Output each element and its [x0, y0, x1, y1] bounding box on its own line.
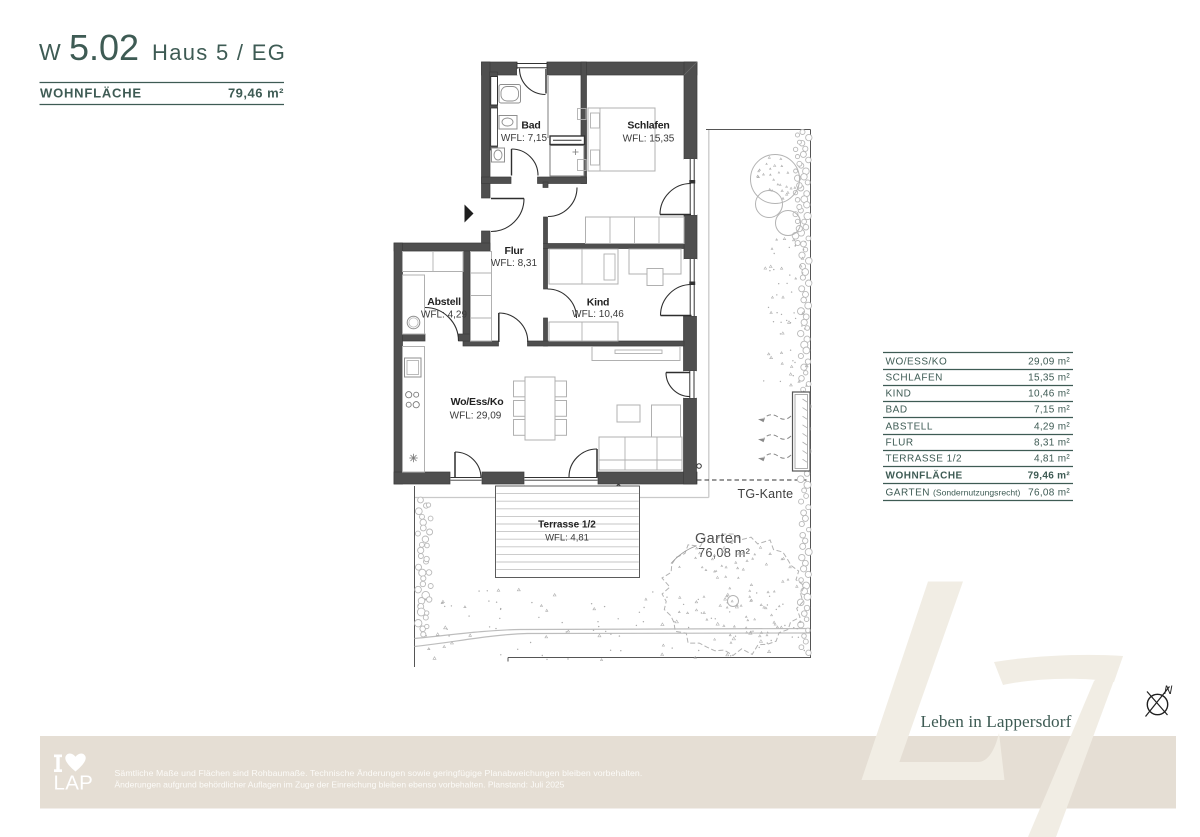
svg-text:WOHNFLÄCHE: WOHNFLÄCHE	[40, 86, 142, 101]
svg-text:Wo/Ess/Ko: Wo/Ess/Ko	[451, 396, 504, 408]
svg-text:7,15 m²: 7,15 m²	[1034, 405, 1070, 416]
svg-text:Kind: Kind	[587, 297, 610, 309]
svg-text:WFL: 8,31: WFL: 8,31	[491, 258, 538, 269]
svg-text:Terrasse 1/2: Terrasse 1/2	[538, 520, 596, 531]
svg-text:Haus 5 / EG: Haus 5 / EG	[152, 40, 286, 65]
svg-text:Sämtliche Maße und Flächen sin: Sämtliche Maße und Flächen sind Rohbauma…	[115, 768, 643, 778]
svg-text:LAP: LAP	[54, 772, 94, 795]
svg-text:WFL: 29,09: WFL: 29,09	[450, 411, 502, 422]
svg-text:79,46 m²: 79,46 m²	[1028, 471, 1071, 482]
svg-text:ABSTELL: ABSTELL	[886, 422, 933, 433]
svg-text:WFL: 10,46: WFL: 10,46	[572, 309, 624, 320]
svg-text:5.02: 5.02	[69, 27, 139, 68]
svg-text:10,46 m²: 10,46 m²	[1028, 389, 1070, 400]
svg-text:WFL: 7,15: WFL: 7,15	[501, 133, 548, 144]
svg-text:SCHLAFEN: SCHLAFEN	[886, 373, 943, 384]
svg-text:4,29 m²: 4,29 m²	[1034, 422, 1070, 433]
svg-text:TG-Kante: TG-Kante	[738, 487, 794, 501]
svg-text:15,35 m²: 15,35 m²	[1028, 373, 1070, 384]
svg-text:GARTEN: GARTEN	[886, 488, 931, 499]
svg-text:WFL: 4,81: WFL: 4,81	[545, 533, 589, 544]
svg-text:FLUR: FLUR	[886, 438, 914, 449]
svg-text:WFL: 15,35: WFL: 15,35	[623, 134, 675, 145]
svg-text:Bad: Bad	[521, 120, 540, 132]
svg-text:KIND: KIND	[886, 389, 912, 400]
svg-text:TERRASSE 1/2: TERRASSE 1/2	[886, 454, 963, 465]
svg-text:Änderungen aufgrund behördlich: Änderungen aufgrund behördlicher Auflage…	[115, 779, 565, 789]
svg-text:(Sondernutzungsrecht): (Sondernutzungsrecht)	[933, 488, 1021, 498]
svg-text:WO/ESS/KO: WO/ESS/KO	[886, 357, 948, 368]
svg-text:Leben in Lappersdorf: Leben in Lappersdorf	[921, 712, 1072, 731]
svg-text:79,46 m²: 79,46 m²	[228, 86, 284, 101]
svg-text:Flur: Flur	[504, 245, 523, 257]
svg-text:76,08 m²: 76,08 m²	[1028, 488, 1070, 499]
svg-text:W: W	[39, 39, 61, 65]
svg-text:BAD: BAD	[886, 405, 908, 416]
svg-text:4,81 m²: 4,81 m²	[1034, 454, 1070, 465]
svg-text:N: N	[1164, 685, 1173, 697]
svg-text:Schlafen: Schlafen	[627, 120, 669, 132]
svg-text:Abstell: Abstell	[427, 296, 461, 308]
svg-text:WOHNFLÄCHE: WOHNFLÄCHE	[886, 469, 963, 482]
svg-text:29,09 m²: 29,09 m²	[1028, 357, 1070, 368]
svg-text:8,31 m²: 8,31 m²	[1034, 438, 1070, 449]
svg-text:WFL: 4,29: WFL: 4,29	[421, 310, 468, 321]
